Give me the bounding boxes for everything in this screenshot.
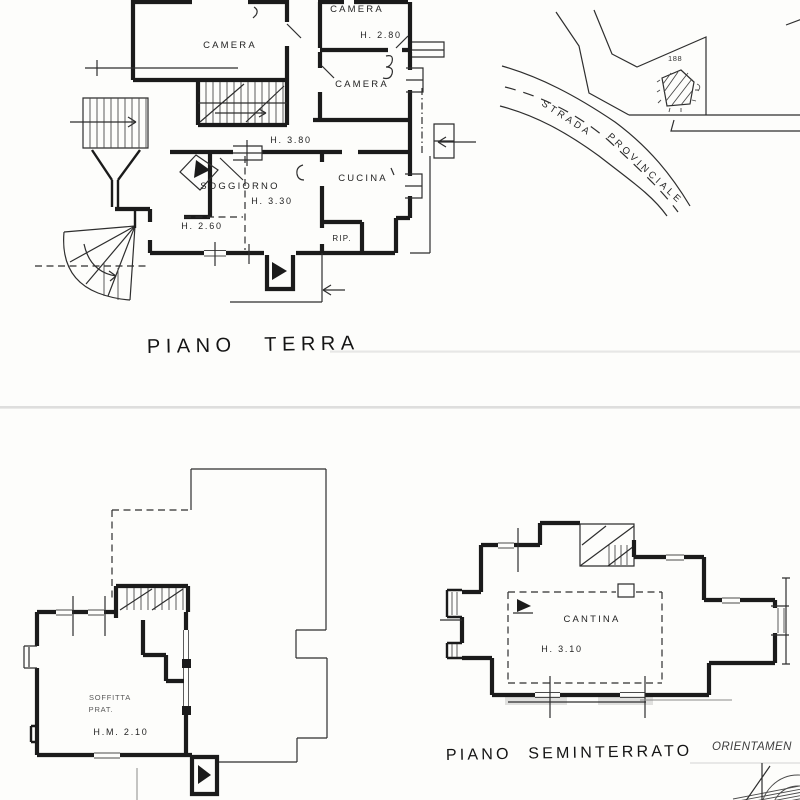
parcel-number: 188: [668, 54, 682, 63]
height-label-cantina: H. 3.10: [541, 644, 583, 654]
room-label-camera-right: CAMERA: [335, 79, 389, 90]
window-mullion: [182, 659, 191, 668]
floor-plan-sheet: CAMERA CAMERA H. 2.80 CAMERA H. 3.80 SOG…: [0, 0, 800, 800]
room-label-camera-left: CAMERA: [203, 40, 257, 51]
height-label-soggiorno: H. 3.30: [251, 196, 293, 206]
room-label-soggiorno: SOGGIORNO: [200, 181, 279, 192]
height-label-attic: H.M. 2.10: [93, 727, 148, 737]
floor-plan-drawing: CAMERA CAMERA H. 2.80 CAMERA H. 3.80 SOG…: [0, 0, 800, 800]
orientation-label: ORIENTAMEN: [712, 741, 792, 753]
room-label-rip: RIP.: [332, 234, 351, 243]
caption-piano-terra: PIANO TERRA: [147, 332, 360, 358]
room-label-cucina: CUCINA: [338, 173, 388, 184]
height-label-soggiorno-low: H. 2.60: [181, 221, 223, 231]
room-label-soffitta-2: PRAT.: [89, 705, 114, 714]
room-label-soffitta: SOFFITTA: [89, 693, 131, 702]
room-label-cantina: CANTINA: [563, 614, 620, 625]
height-label-hall: H. 3.80: [270, 135, 312, 145]
height-label-camera-top: H. 2.80: [360, 30, 402, 40]
window-mullion: [182, 706, 191, 715]
room-label-camera-top: CAMERA: [330, 4, 384, 15]
